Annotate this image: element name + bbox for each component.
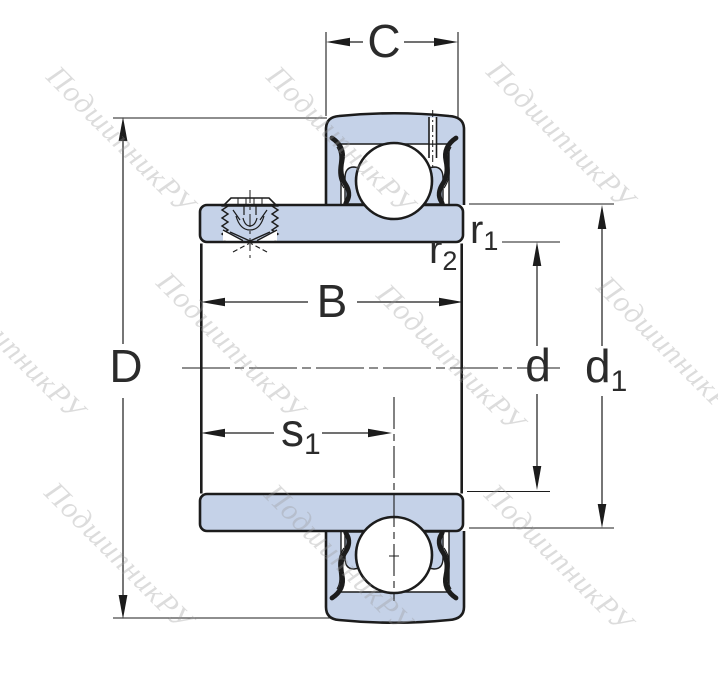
arrow-C-right [434, 38, 458, 47]
arrow-d1-bottom [598, 504, 607, 528]
dim-label-B: B [317, 275, 348, 327]
lubrication-hole [429, 110, 437, 170]
dim-label-d1: d1 [585, 340, 627, 398]
dim-label-d1-sub: 1 [611, 365, 628, 398]
dim-label-r1: r1 [470, 208, 498, 256]
bearing-cross-section-drawing: C D B d d1 s1 r1 r2 ПодшипникРУ Подшипни… [0, 0, 718, 682]
sleeve-bottom-bar [200, 494, 463, 531]
dim-label-d1-base: d [585, 340, 611, 392]
arrow-s1-left [201, 429, 225, 438]
dim-label-s1-sub: 1 [304, 428, 321, 461]
watermark: ПодшипникРУ [39, 59, 203, 223]
arrow-d-top [533, 242, 542, 266]
bearing-drawing-page: C D B d d1 s1 r1 r2 ПодшипникРУ Подшипни… [0, 0, 718, 682]
dim-label-r2-sub: 2 [442, 246, 457, 276]
arrow-D-bottom [119, 595, 128, 619]
watermark: ПодшипникРУ [0, 265, 94, 429]
arrow-d1-top [598, 205, 607, 229]
dim-label-r1-base: r [470, 208, 483, 252]
watermark: ПодшипникРУ [37, 475, 201, 639]
arrow-s1-right [368, 429, 392, 438]
dim-label-D: D [109, 340, 142, 392]
arrow-C-left [326, 38, 350, 47]
dim-label-r2-base: r [429, 228, 442, 272]
dim-label-C: C [367, 15, 400, 67]
arrow-B-right [439, 298, 463, 307]
watermark: ПодшипникРУ [149, 265, 313, 429]
watermark: ПодшипникРУ [477, 477, 641, 641]
dim-label-r1-sub: 1 [483, 226, 498, 256]
watermark: ПодшипникРУ [479, 54, 643, 218]
dim-label-d: d [525, 339, 551, 391]
arrow-d-bottom [533, 466, 542, 490]
